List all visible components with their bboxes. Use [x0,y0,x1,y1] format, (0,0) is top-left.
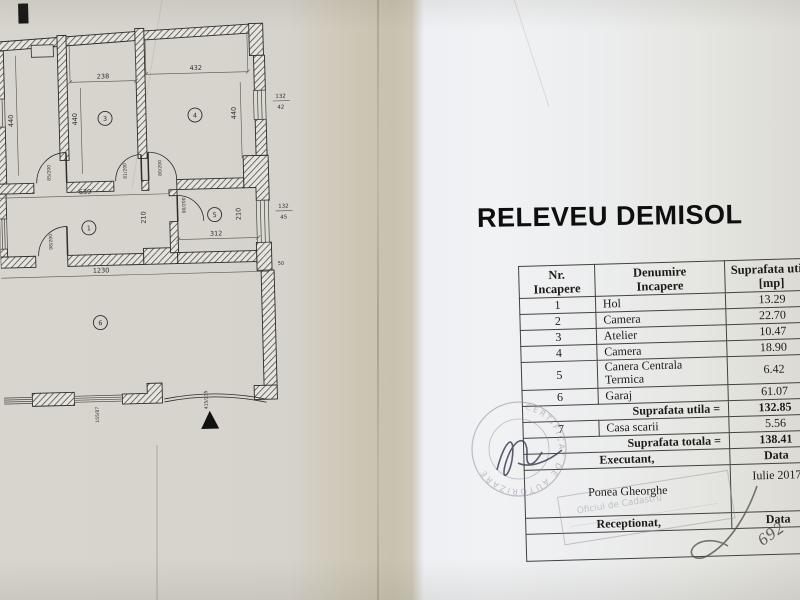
door-dim-2: 81/200 [122,163,128,179]
dim-312: 312 [210,229,223,237]
dim-440-mid: 440 [71,113,79,126]
door-dim-5: 98/200 [48,234,54,250]
door-dim-1: 85/200 [46,165,52,181]
window-dim-132-45-num: 132 [278,204,289,210]
paper-crease-bottom-left [156,445,158,600]
dim-1230: 1230 [93,266,110,274]
plan-dimension-labels: 238 432 440 440 440 639 210 210 312 1230… [6,62,294,425]
signer-row: Ponea Gheorghe Iulie 2017 [524,462,800,518]
dim-432: 432 [189,64,202,72]
room-number-4: 4 [193,111,197,119]
dim-210-hall: 210 [140,211,148,224]
floor-plan-drawing: 238 432 440 440 440 639 210 210 312 1230… [0,0,326,464]
door-dim-4: 90/200 [181,197,187,213]
dim-238: 238 [97,72,110,80]
window-dim-132-42-den: 42 [277,105,284,111]
col-header-denumire: Denumire Incapere [594,261,725,297]
col-header-suprafata: Suprafata utila [mp] [724,258,800,293]
dim-440-left: 440 [7,115,15,128]
dim-155-87: 155/87 [95,407,101,423]
window-dim-132-45-den: 45 [280,215,288,221]
dim-210-room5: 210 [234,208,242,221]
dim-415-235: 415/235 [203,390,209,409]
room-number-5: 5 [212,211,216,219]
paper-crease-top-right [511,0,549,107]
dim-440-right: 440 [230,107,238,120]
room-number-hall: 1 [87,224,91,232]
plan-windows [0,90,273,404]
plan-room-numbers [79,107,225,330]
col-header-nr: Nr. Incapere [519,264,596,298]
door-dim-3: 80/200 [157,160,163,176]
plan-entrance-arrow [201,411,219,429]
room-number-3: 3 [103,115,107,123]
dim-639: 639 [79,188,92,196]
photographed-document: 238 432 440 440 440 639 210 210 312 1230… [0,0,800,600]
paper-fold-crease [377,0,379,600]
room-number-garage: 6 [98,319,102,327]
area-table: Nr. Incapere Denumire Incapere Suprafata… [518,258,800,562]
window-dim-132-42-num: 132 [275,94,286,100]
dim-50: 50 [278,261,285,267]
page-title: RELEVEU DEMISOL [477,199,757,234]
